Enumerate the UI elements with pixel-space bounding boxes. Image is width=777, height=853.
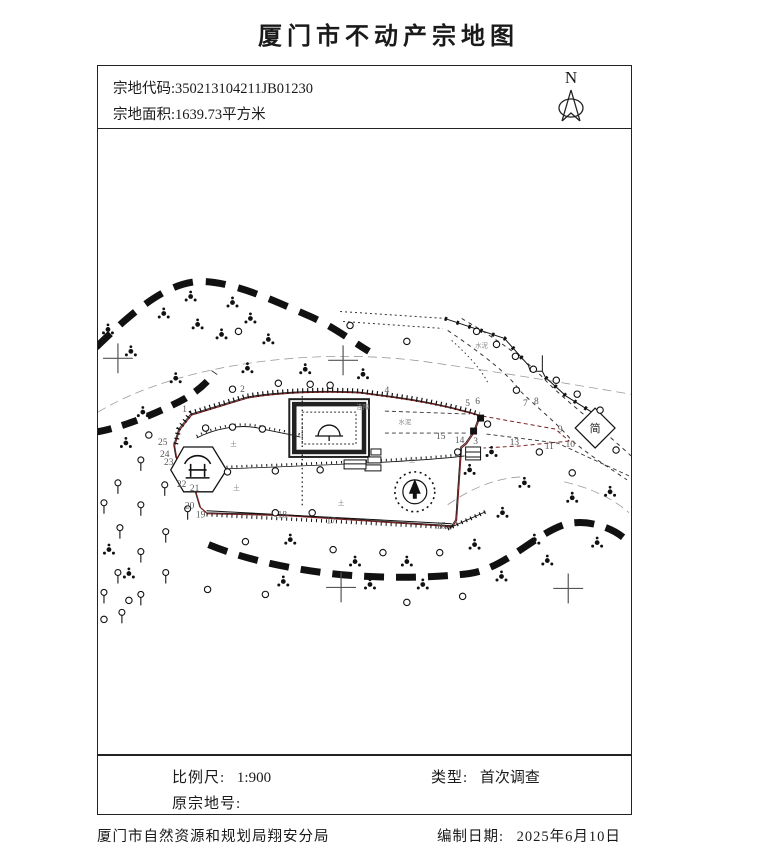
tree-icon bbox=[277, 575, 289, 586]
parcel-area-value: 1639.73平方米 bbox=[175, 107, 266, 123]
small-circle-icon bbox=[404, 338, 410, 344]
orchard-tree-icon bbox=[162, 482, 168, 496]
orchard-tree-icon bbox=[115, 570, 121, 584]
boundary-monument-icon bbox=[470, 428, 477, 435]
small-circle-icon bbox=[101, 616, 107, 622]
parcel-area-line: 宗地面积:1639.73平方米 bbox=[113, 103, 266, 124]
tree-icon bbox=[518, 477, 530, 488]
orchard-tree-icon bbox=[101, 500, 107, 514]
grid-cross-icon bbox=[328, 345, 358, 375]
date-label: 编制日期: bbox=[437, 829, 504, 845]
tree-icon bbox=[137, 406, 149, 417]
small-circle-icon bbox=[597, 407, 603, 413]
small-circle-icon bbox=[272, 468, 278, 474]
original-parcel-line: 原宗地号: bbox=[172, 792, 249, 813]
orchard-tree-icon bbox=[163, 570, 169, 584]
boundary-point-number: 2 bbox=[240, 385, 245, 395]
tree-icon bbox=[158, 308, 170, 319]
boundary-point-number: 1 bbox=[182, 405, 187, 415]
original-parcel-label: 原宗地号: bbox=[172, 796, 241, 812]
boundary-point-number: 16 bbox=[436, 522, 446, 532]
boundary-point-number: 14 bbox=[455, 436, 465, 446]
tree-icon bbox=[244, 312, 256, 323]
tree-icon bbox=[496, 571, 508, 582]
orchard-tree-icon bbox=[119, 609, 125, 623]
small-circle-icon bbox=[574, 391, 580, 397]
small-circle-icon bbox=[275, 380, 281, 386]
small-circle-icon bbox=[484, 421, 490, 427]
tree-icon bbox=[497, 507, 509, 518]
map-annotation: 连障 bbox=[357, 402, 370, 411]
page-title: 厦门市不动产宗地图 bbox=[0, 16, 777, 51]
tree-icon bbox=[123, 568, 135, 579]
map-annotation: 土 bbox=[409, 455, 416, 464]
small-circle-icon bbox=[512, 353, 518, 359]
type-label: 类型: bbox=[431, 770, 468, 786]
boundary-point-number: 3 bbox=[473, 437, 478, 447]
small-circle-icon bbox=[317, 467, 323, 473]
small-circle-icon bbox=[229, 424, 235, 430]
small-circle-icon bbox=[235, 328, 241, 334]
orchard-tree-icon bbox=[138, 502, 144, 516]
boundary-point-number: 9 bbox=[558, 425, 563, 435]
small-circle-icon bbox=[327, 382, 333, 388]
boundary-point-number: 25 bbox=[158, 438, 168, 448]
boundary-point-number: 13 bbox=[510, 438, 520, 448]
boundary-point-number: 24 bbox=[160, 450, 170, 460]
tree-icon bbox=[591, 537, 603, 548]
orchard-tree-icon bbox=[163, 529, 169, 543]
parcel-code-value: 350213104211JB01230 bbox=[175, 81, 313, 97]
boundary-point-number: 4 bbox=[385, 386, 390, 396]
tomb-tree-icon bbox=[409, 479, 421, 499]
parcel-area-label: 宗地面积: bbox=[113, 107, 175, 123]
tree-icon bbox=[284, 534, 296, 545]
orchard-tree-icon bbox=[101, 589, 107, 603]
tree-icon bbox=[604, 486, 616, 497]
boundary-point-number: 18 bbox=[278, 511, 288, 521]
tree-icon bbox=[227, 297, 239, 308]
small-circle-icon bbox=[204, 586, 210, 592]
date-value: 2025年6月10日 bbox=[517, 829, 621, 845]
tree-icon bbox=[103, 544, 115, 555]
tree-icon bbox=[216, 328, 228, 339]
tomb-circle bbox=[395, 472, 435, 512]
boundary-point-number: 20 bbox=[185, 502, 195, 512]
small-circle-icon bbox=[473, 328, 479, 334]
info-box: 比例尺: 1:900 类型: 首次调查 原宗地号: bbox=[98, 754, 631, 814]
parcel-map-svg: 124567891011131431516171819202122232425 … bbox=[98, 129, 631, 754]
small-circle-icon bbox=[569, 470, 575, 476]
boundary-point-number: 7 bbox=[523, 399, 528, 409]
type-line: 类型: 首次调查 bbox=[431, 766, 540, 787]
small-circle-icon bbox=[307, 381, 313, 387]
map-annotation: 土 bbox=[233, 483, 240, 492]
small-circle-icon bbox=[454, 449, 460, 455]
tree-icon bbox=[469, 539, 481, 550]
header-box: 宗地代码:350213104211JB01230 宗地面积:1639.73平方米… bbox=[98, 66, 631, 129]
tree-icon bbox=[566, 492, 578, 503]
small-circle-icon bbox=[262, 591, 268, 597]
tree-icon bbox=[192, 318, 204, 329]
orchard-tree-icon bbox=[117, 525, 123, 539]
tree-icon bbox=[464, 464, 476, 475]
map-annotation: 简 bbox=[590, 421, 601, 435]
boundary-point-number: 8 bbox=[534, 397, 539, 407]
small-circle-icon bbox=[229, 386, 235, 392]
boundary-point-number: 15 bbox=[436, 432, 446, 442]
boundary-point-number: 19 bbox=[196, 511, 206, 521]
small-circle-icon bbox=[309, 510, 315, 516]
north-letter: N bbox=[549, 68, 593, 88]
grid-cross-icon bbox=[553, 574, 583, 604]
small-circle-icon bbox=[613, 447, 619, 453]
map-annotation: 水泥 bbox=[398, 417, 411, 426]
date-line: 编制日期: 2025年6月10日 bbox=[437, 825, 621, 846]
scale-line: 比例尺: 1:900 bbox=[172, 766, 271, 787]
tree-icon bbox=[262, 333, 274, 344]
boundary-point-number: 6 bbox=[475, 397, 480, 407]
north-arrow: N bbox=[549, 68, 593, 128]
boundary-point-number: 5 bbox=[465, 399, 470, 409]
small-circle-icon bbox=[553, 377, 559, 383]
orchard-tree-icon bbox=[115, 480, 121, 494]
small-circle-icon bbox=[493, 341, 499, 347]
small-circle-icon bbox=[380, 549, 386, 555]
boundary-point-number: 17 bbox=[326, 517, 336, 527]
orchard-tree-icon bbox=[138, 457, 144, 471]
boundary-point-number: 10 bbox=[566, 440, 576, 450]
orchard-tree-icon bbox=[138, 591, 144, 605]
small-circle-icon bbox=[126, 597, 132, 603]
small-circle-icon bbox=[347, 322, 353, 328]
small-circle-icon bbox=[437, 549, 443, 555]
boundary-monument-icon bbox=[477, 415, 484, 422]
tree-icon bbox=[417, 578, 429, 589]
small-circle-icon bbox=[530, 366, 536, 372]
boundary-point-number: 11 bbox=[545, 442, 554, 452]
parcel-code-line: 宗地代码:350213104211JB01230 bbox=[113, 77, 313, 98]
map-frame: 宗地代码:350213104211JB01230 宗地面积:1639.73平方米… bbox=[97, 65, 632, 815]
small-circle-icon bbox=[330, 546, 336, 552]
map-area: 124567891011131431516171819202122232425 … bbox=[98, 129, 631, 754]
map-annotation: 土 bbox=[230, 439, 237, 448]
road-dashed-top bbox=[98, 281, 369, 351]
map-annotation: 土 bbox=[338, 498, 345, 507]
tree-icon bbox=[357, 368, 369, 379]
orchard-tree-icon bbox=[138, 549, 144, 563]
boundary-point-number: 21 bbox=[190, 484, 200, 494]
type-value: 首次调查 bbox=[480, 770, 540, 786]
map-annotation: 水泥 bbox=[475, 340, 488, 349]
tree-icon bbox=[349, 556, 361, 567]
road-dashed-bottom bbox=[209, 523, 627, 578]
small-circle-icon bbox=[513, 387, 519, 393]
scale-label: 比例尺: bbox=[172, 770, 225, 786]
tree-icon bbox=[120, 437, 132, 448]
tree-icon bbox=[299, 363, 311, 374]
small-circle-icon bbox=[224, 469, 230, 475]
tree-icon bbox=[486, 446, 498, 457]
small-circle-icon bbox=[459, 593, 465, 599]
small-circle-icon bbox=[202, 425, 208, 431]
boundary-point-number: 22 bbox=[177, 480, 187, 490]
scale-value: 1:900 bbox=[237, 770, 271, 786]
tree-icon bbox=[401, 556, 413, 567]
parcel-code-label: 宗地代码: bbox=[113, 81, 175, 97]
tree-symbols bbox=[102, 291, 616, 590]
small-circle-icon bbox=[242, 538, 248, 544]
small-circle-icon bbox=[404, 599, 410, 605]
small-circle-icon bbox=[146, 432, 152, 438]
grid-cross-icon bbox=[103, 343, 133, 373]
tree-icon bbox=[541, 555, 553, 566]
small-circle-icon bbox=[536, 449, 542, 455]
parcel-map-sheet: 厦门市不动产宗地图 宗地代码:350213104211JB01230 宗地面积:… bbox=[0, 0, 777, 853]
agency-name: 厦门市自然资源和规划局翔安分局 bbox=[97, 825, 330, 846]
tree-icon bbox=[185, 291, 197, 302]
tree-icon bbox=[125, 345, 137, 356]
small-circle-icon bbox=[259, 426, 265, 432]
